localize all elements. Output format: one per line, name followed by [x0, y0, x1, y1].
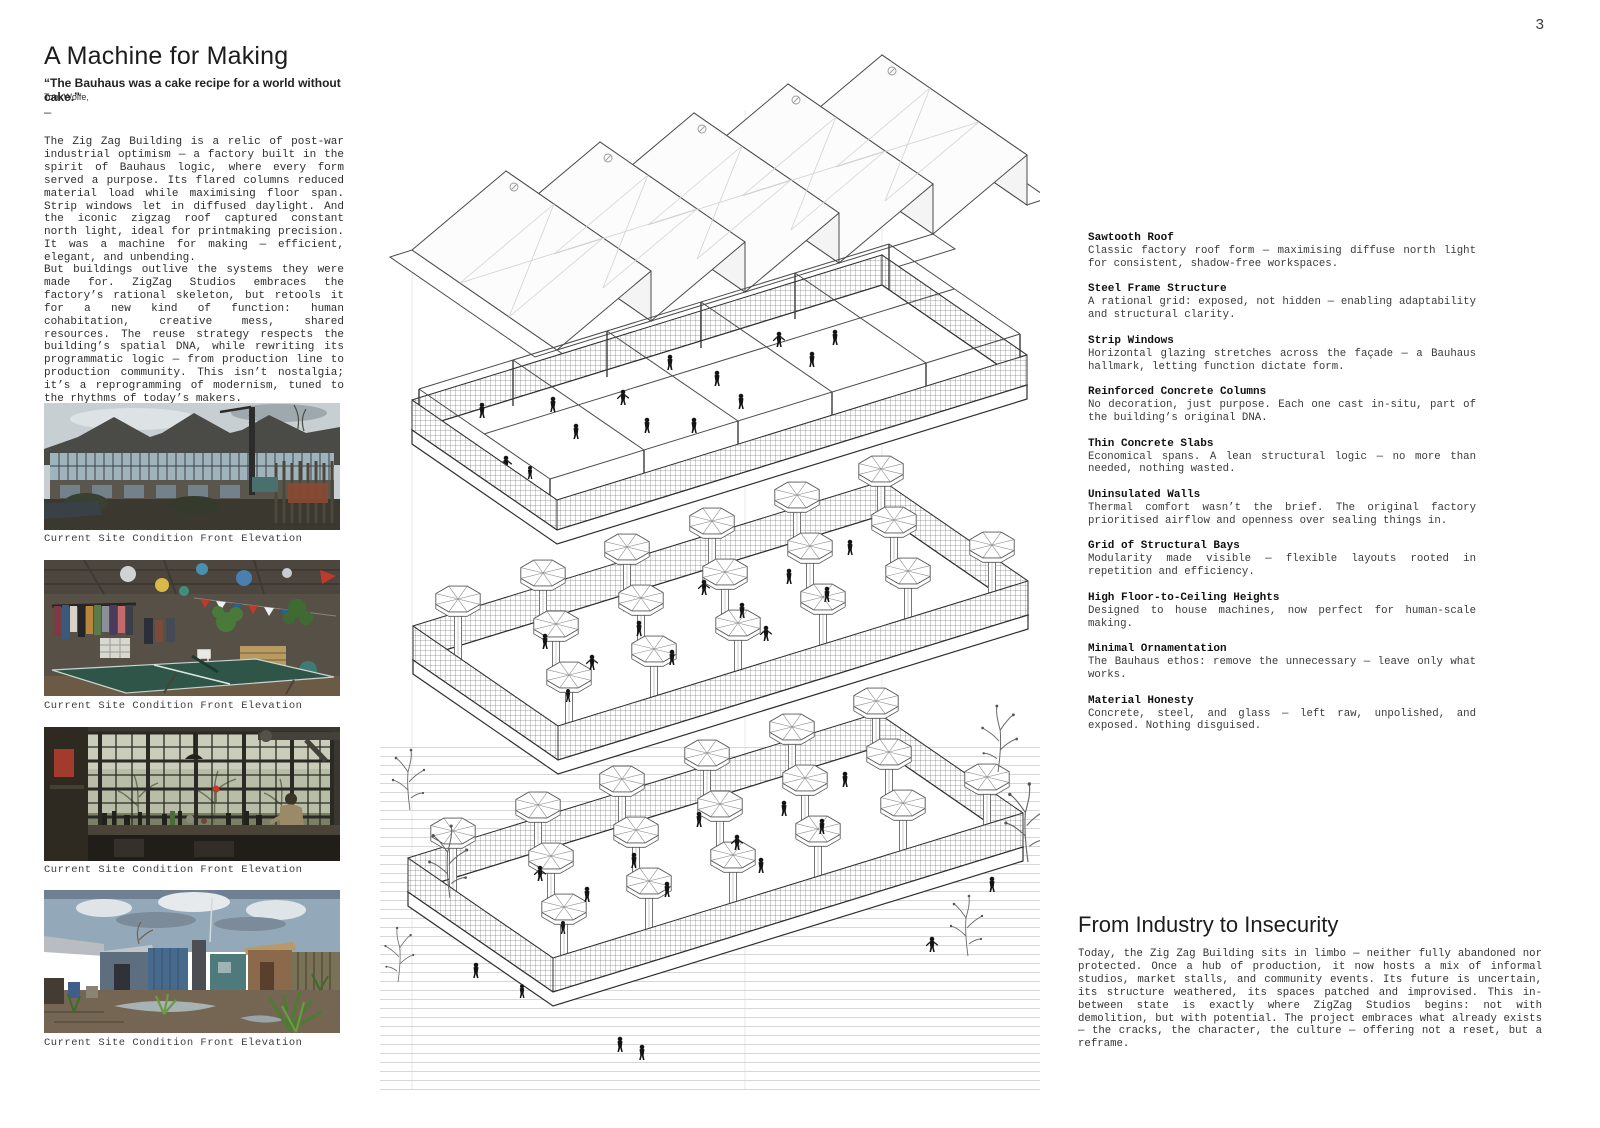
- intro-paragraph-2: But buildings outlive the systems they w…: [44, 264, 344, 406]
- photo-yard-image: [44, 890, 340, 1033]
- annotation-item: Grid of Structural Bays Modularity made …: [1088, 540, 1476, 578]
- photo-factory-front: [44, 403, 340, 530]
- annotation-body: Classic factory roof form — maximising d…: [1088, 245, 1476, 270]
- page-title: A Machine for Making: [44, 42, 374, 71]
- annotation-item: Sawtooth Roof Classic factory roof form …: [1088, 232, 1476, 270]
- photo-caption-1: Current Site Condition Front Elevation: [44, 533, 302, 545]
- annotation-item: Steel Frame Structure A rational grid: e…: [1088, 283, 1476, 321]
- photo-workshop-window-image: [44, 727, 340, 861]
- photo-interior-market-image: [44, 560, 340, 696]
- epigraph-quote: “The Bauhaus was a cake recipe for a wor…: [44, 76, 374, 104]
- annotation-title: Minimal Ornamentation: [1088, 643, 1476, 655]
- annotation-item: Reinforced Concrete Columns No decoratio…: [1088, 386, 1476, 424]
- photo-yard: [44, 890, 340, 1033]
- annotation-body: Thermal comfort wasn’t the brief. The or…: [1088, 502, 1476, 527]
- annotation-title: Sawtooth Roof: [1088, 232, 1476, 244]
- annotation-body: The Bauhaus ethos: remove the unnecessar…: [1088, 656, 1476, 681]
- building-annotations: Sawtooth Roof Classic factory roof form …: [1088, 232, 1476, 746]
- intro-paragraph-1: The Zig Zag Building is a relic of post-…: [44, 136, 344, 265]
- epigraph-attribution: Tom Wolfe,: [44, 92, 89, 102]
- annotation-title: Strip Windows: [1088, 335, 1476, 347]
- annotation-body: Economical spans. A lean structural logi…: [1088, 451, 1476, 476]
- exploded-axonometric-drawing: [380, 50, 1040, 1105]
- divider-dash: —: [44, 106, 51, 120]
- photo-caption-4: Current Site Condition Front Elevation: [44, 1037, 302, 1049]
- annotation-item: Strip Windows Horizontal glazing stretch…: [1088, 335, 1476, 373]
- annotation-body: A rational grid: exposed, not hidden — e…: [1088, 296, 1476, 321]
- photo-caption-3: Current Site Condition Front Elevation: [44, 864, 302, 876]
- page-number: 3: [1536, 16, 1544, 33]
- annotation-body: No decoration, just purpose. Each one ca…: [1088, 399, 1476, 424]
- annotation-title: Reinforced Concrete Columns: [1088, 386, 1476, 398]
- section-title-industry: From Industry to Insecurity: [1078, 912, 1548, 938]
- axon-svg: [380, 50, 1040, 1105]
- portfolio-page: 3 A Machine for Making “The Bauhaus was …: [0, 0, 1600, 1128]
- annotation-title: Material Honesty: [1088, 695, 1476, 707]
- annotation-title: Thin Concrete Slabs: [1088, 438, 1476, 450]
- industry-paragraph: Today, the Zig Zag Building sits in limb…: [1078, 948, 1542, 1051]
- photo-factory-front-image: [44, 403, 340, 530]
- annotation-title: High Floor-to-Ceiling Heights: [1088, 592, 1476, 604]
- annotation-body: Concrete, steel, and glass — left raw, u…: [1088, 708, 1476, 733]
- photo-interior-market: [44, 560, 340, 696]
- annotation-title: Uninsulated Walls: [1088, 489, 1476, 501]
- annotation-title: Grid of Structural Bays: [1088, 540, 1476, 552]
- annotation-item: Uninsulated Walls Thermal comfort wasn’t…: [1088, 489, 1476, 527]
- annotation-item: Thin Concrete Slabs Economical spans. A …: [1088, 438, 1476, 476]
- annotation-item: Material Honesty Concrete, steel, and gl…: [1088, 695, 1476, 733]
- annotation-item: Minimal Ornamentation The Bauhaus ethos:…: [1088, 643, 1476, 681]
- photo-caption-2: Current Site Condition Front Elevation: [44, 700, 302, 712]
- annotation-body: Designed to house machines, now perfect …: [1088, 605, 1476, 630]
- annotation-title: Steel Frame Structure: [1088, 283, 1476, 295]
- annotation-item: High Floor-to-Ceiling Heights Designed t…: [1088, 592, 1476, 630]
- photo-workshop-window: [44, 727, 340, 861]
- annotation-body: Horizontal glazing stretches across the …: [1088, 348, 1476, 373]
- annotation-body: Modularity made visible — flexible layou…: [1088, 553, 1476, 578]
